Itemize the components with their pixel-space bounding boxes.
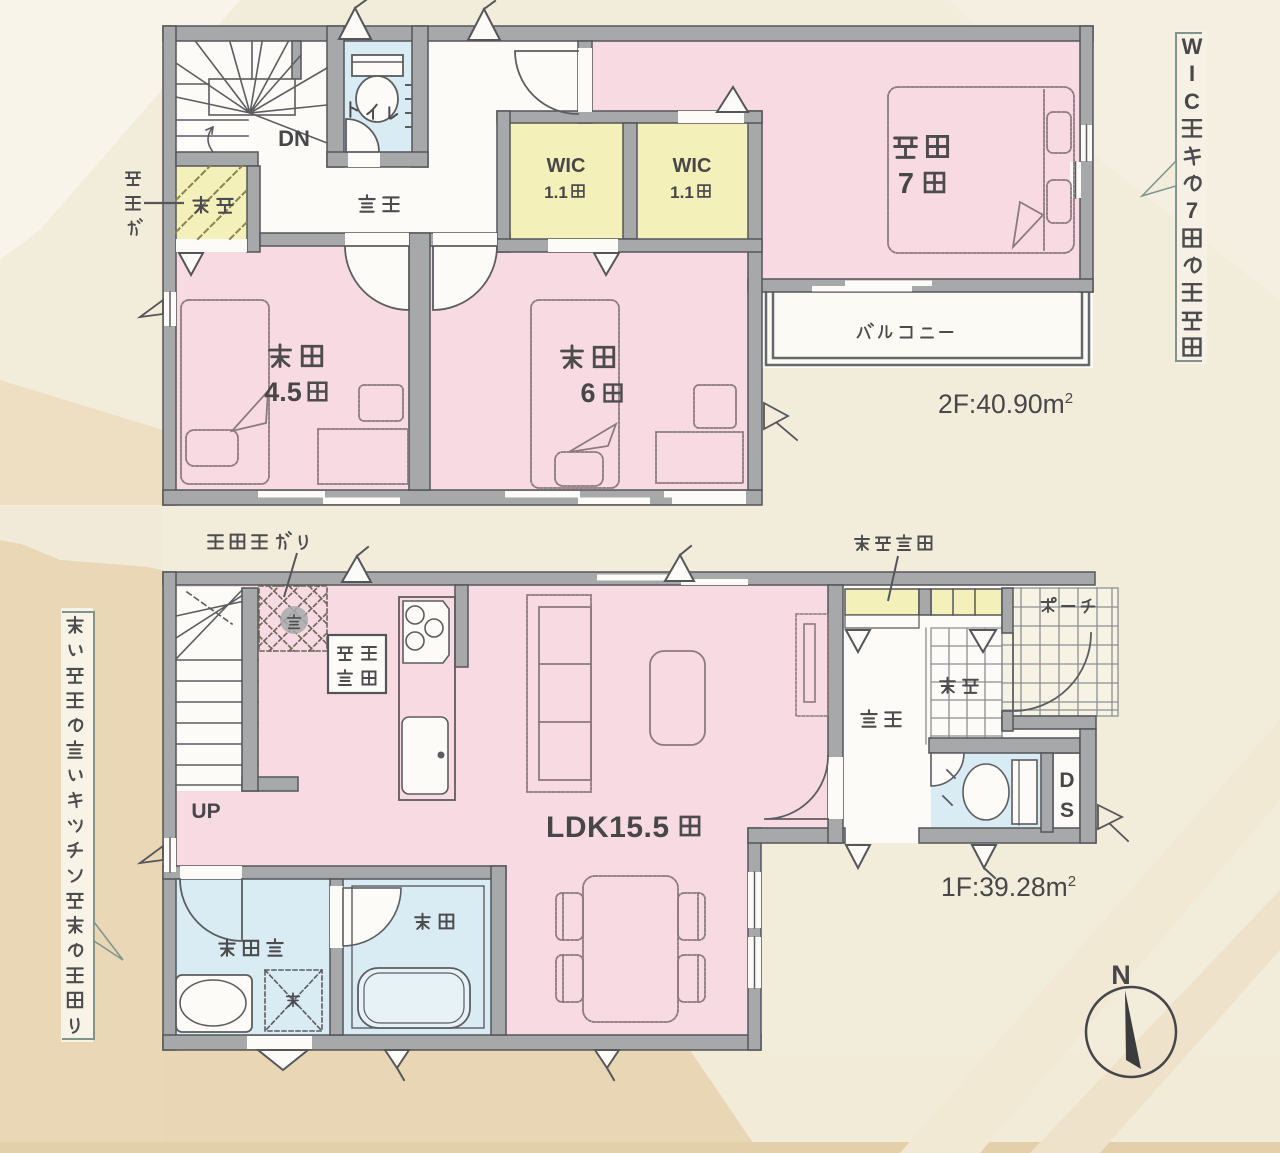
svg-text:UP: UP	[191, 800, 220, 823]
svg-text:WIC: WIC	[673, 155, 712, 177]
svg-text:1.1: 1.1	[544, 183, 568, 202]
svg-text:4.5: 4.5	[264, 377, 302, 407]
svg-text:D: D	[1059, 769, 1074, 792]
svg-text:2F:40.90m2: 2F:40.90m2	[938, 389, 1073, 419]
svg-text:6: 6	[580, 378, 595, 408]
svg-text:C: C	[1184, 89, 1200, 114]
svg-text:7: 7	[1186, 198, 1198, 223]
svg-text:1F:39.28m2: 1F:39.28m2	[941, 872, 1076, 902]
svg-text:1.1: 1.1	[670, 183, 694, 202]
svg-text:S: S	[1060, 799, 1074, 822]
svg-text:N: N	[1111, 960, 1131, 990]
svg-text:WIC: WIC	[547, 155, 586, 177]
svg-text:LDK15.5: LDK15.5	[546, 811, 670, 844]
svg-text:7: 7	[898, 168, 914, 200]
svg-text:I: I	[1189, 61, 1195, 86]
svg-text:DN: DN	[278, 126, 310, 151]
svg-text:W: W	[1182, 34, 1203, 59]
